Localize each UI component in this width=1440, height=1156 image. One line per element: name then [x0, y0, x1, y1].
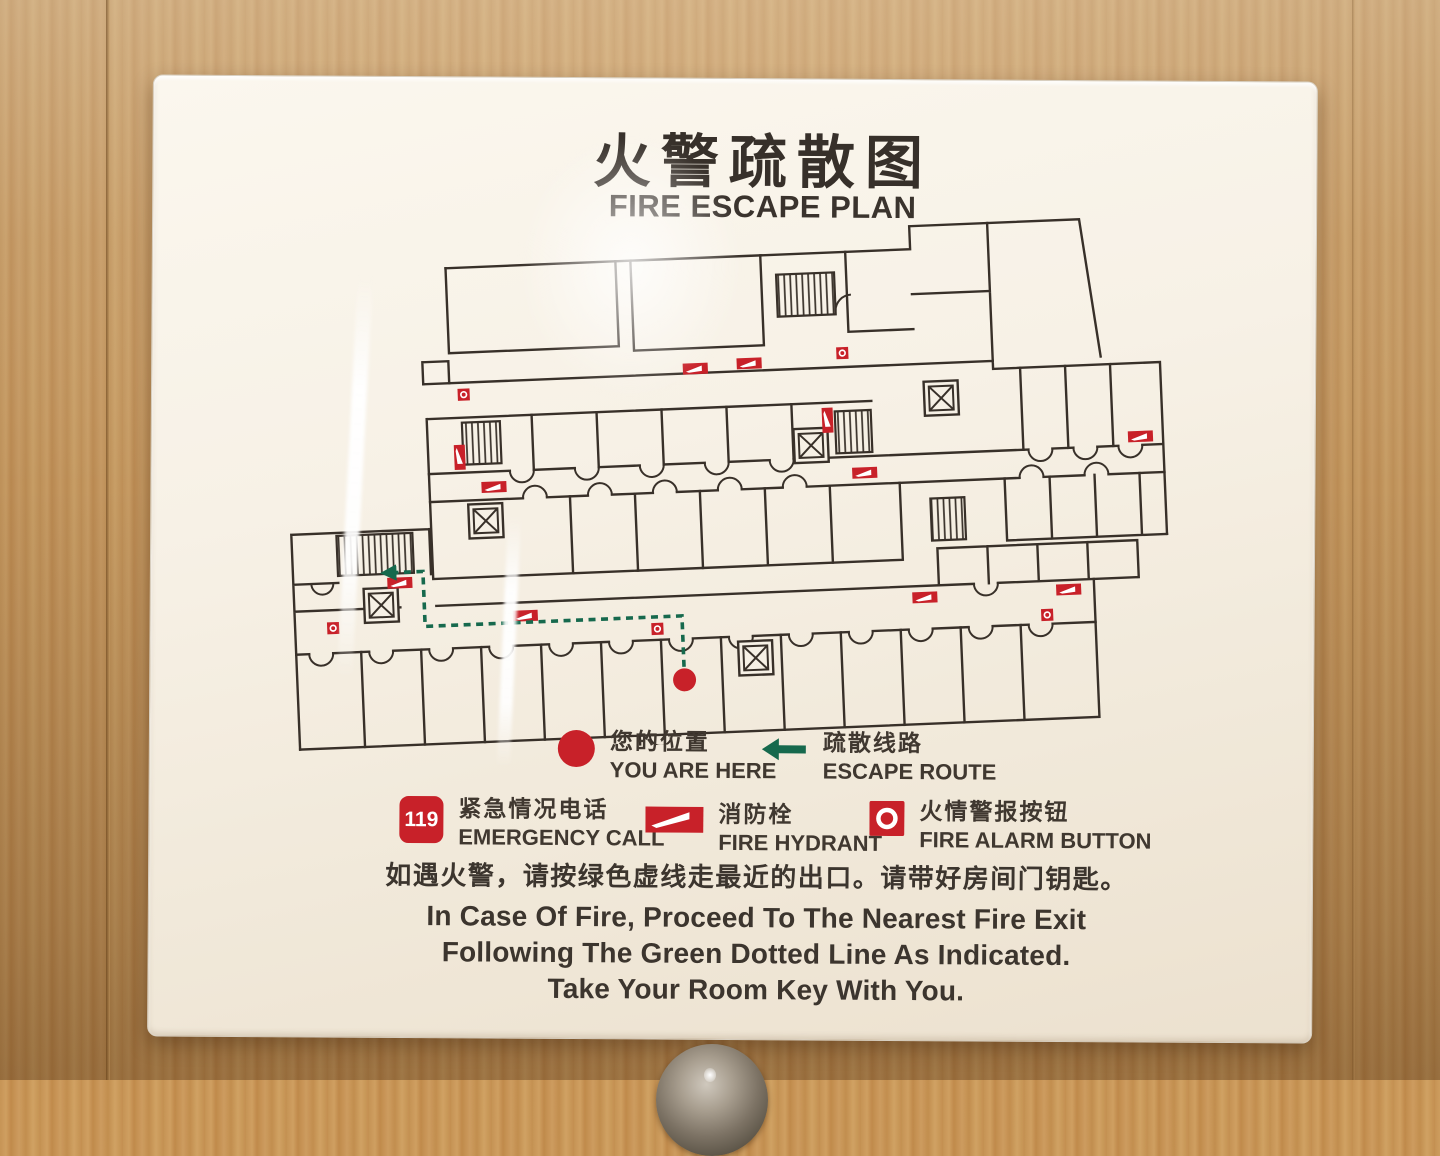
instructions-block: 如遇火警，请按绿色虚线走最近的出口。请带好房间门钥匙。 In Case Of F… [148, 853, 1312, 1013]
legend-emergency-call: 119 紧急情况电话 EMERGENCY CALL [399, 795, 665, 853]
legend-fire-hydrant-en: FIRE HYDRANT [718, 829, 882, 859]
fire-hydrant-marker [379, 341, 1160, 626]
legend-fire-hydrant-zh: 消防栓 [718, 801, 882, 830]
floor-plan-svg [269, 202, 1225, 760]
door-arcs [295, 283, 1153, 760]
legend-fire-alarm-button: 火情警报按钮 FIRE ALARM BUTTON [869, 798, 1152, 856]
floor-plan [269, 202, 1225, 760]
emergency-call-119-icon: 119 [399, 796, 443, 843]
escape-route-arrow-icon [762, 735, 808, 763]
legend-fire-alarm-en: FIRE ALARM BUTTON [919, 826, 1151, 856]
wood-plank-seam [1352, 0, 1355, 1080]
legend-emergency-call-zh: 紧急情况电话 [458, 795, 664, 824]
legend-escape-route-en: ESCAPE ROUTE [823, 757, 997, 787]
instruction-chinese: 如遇火警，请按绿色虚线走最近的出口。请带好房间门钥匙。 [201, 854, 1312, 898]
instruction-english-line1: In Case Of Fire, Proceed To The Nearest … [201, 899, 1312, 938]
floor-plan-drawing [280, 216, 1176, 760]
door-viewer-peephole [656, 1044, 768, 1156]
wood-plank-seam [106, 0, 110, 1080]
legend-you-are-here: 您的位置 YOU ARE HERE [558, 728, 777, 786]
legend-escape-route: 疏散线路 ESCAPE ROUTE [762, 729, 997, 787]
legend-emergency-call-en: EMERGENCY CALL [458, 823, 664, 853]
instruction-english-line3: Take Your Room Key With You. [200, 971, 1311, 1010]
legend-you-are-here-en: YOU ARE HERE [610, 756, 777, 786]
you-are-here-marker [673, 668, 697, 692]
you-are-here-dot-icon [558, 730, 595, 767]
fire-hydrant-icon [645, 806, 703, 832]
legend-escape-route-zh: 疏散线路 [823, 730, 997, 759]
photo-of-fire-escape-sign: { "sign": { "title_zh": "火警疏散图", "title_… [0, 0, 1440, 1080]
fire-alarm-button-icon [869, 801, 904, 836]
fire-escape-plan-sign: 火警疏散图 FIRE ESCAPE PLAN [147, 74, 1318, 1043]
instruction-english-line2: Following The Green Dotted Line As Indic… [200, 935, 1311, 974]
wall-lines [280, 216, 1176, 760]
legend-you-are-here-zh: 您的位置 [610, 728, 777, 757]
legend-fire-alarm-zh: 火情警报按钮 [919, 798, 1151, 827]
legend-fire-hydrant: 消防栓 FIRE HYDRANT [645, 800, 882, 858]
